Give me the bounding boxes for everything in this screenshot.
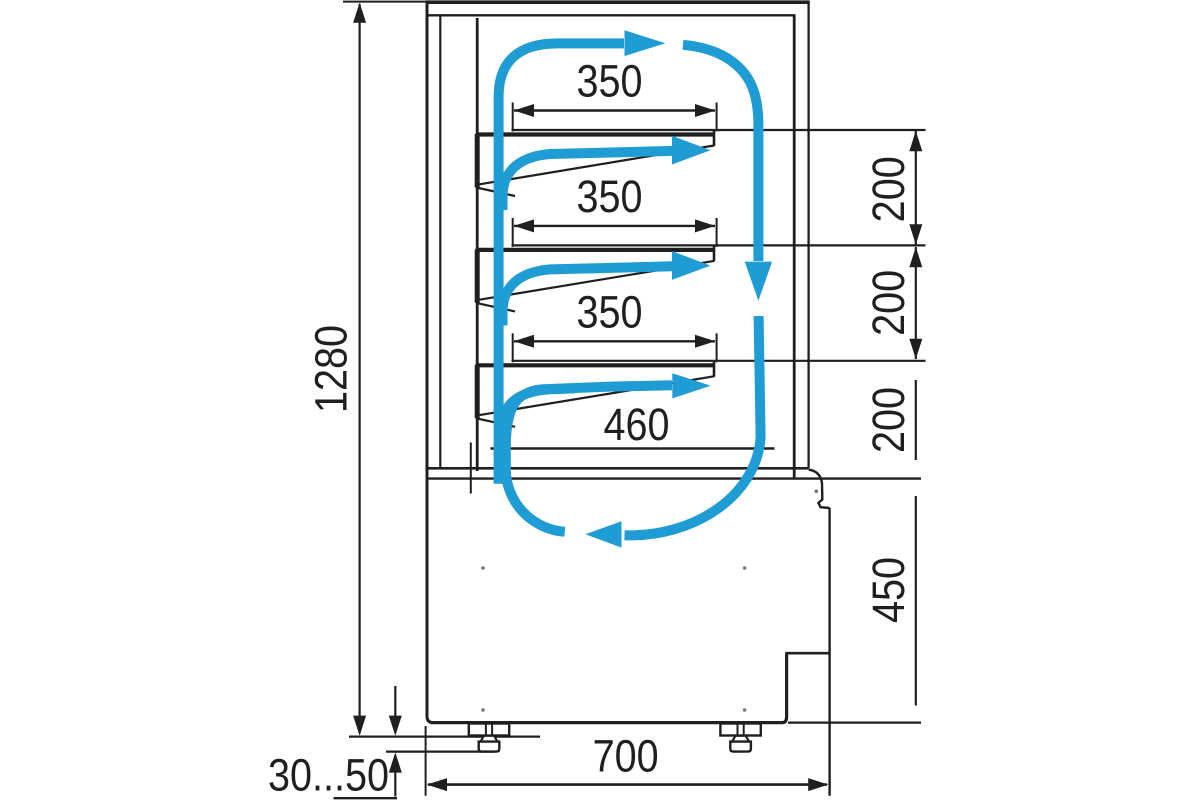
svg-text:350: 350 (576, 172, 642, 222)
svg-text:350: 350 (576, 56, 642, 106)
svg-text:200: 200 (863, 270, 913, 336)
svg-text:30...50: 30...50 (268, 750, 389, 800)
svg-text:200: 200 (863, 387, 913, 453)
svg-text:350: 350 (576, 287, 642, 337)
svg-text:460: 460 (603, 400, 669, 450)
svg-text:200: 200 (863, 156, 913, 222)
svg-text:1280: 1280 (306, 325, 356, 413)
svg-text:450: 450 (863, 557, 913, 623)
svg-text:700: 700 (593, 731, 659, 781)
